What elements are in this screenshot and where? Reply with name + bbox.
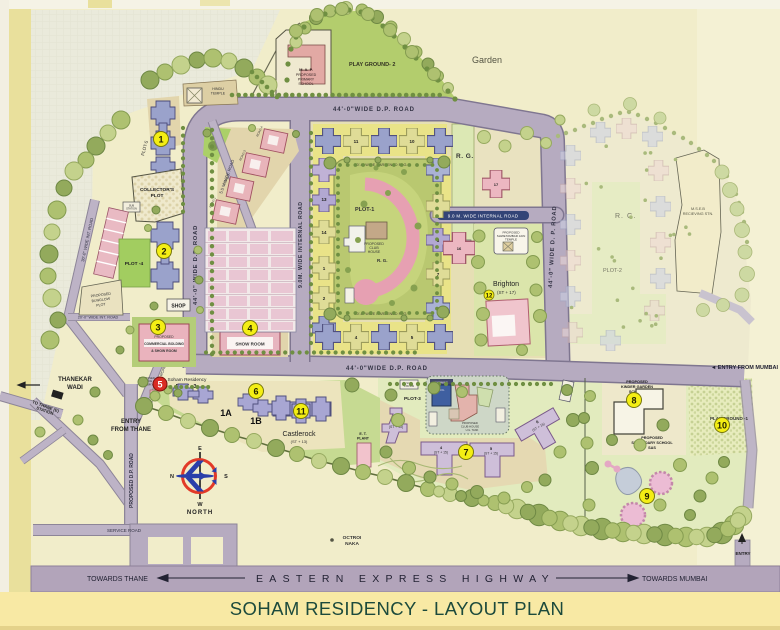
svg-text:U.G. TANK: U.G. TANK	[466, 428, 479, 432]
svg-text:17: 17	[494, 182, 499, 187]
svg-text:S: S	[224, 474, 228, 480]
svg-text:16: 16	[457, 246, 462, 251]
svg-text:44'-0" WIDE D.P. ROAD: 44'-0" WIDE D.P. ROAD	[193, 225, 199, 305]
svg-text:STATION: STATION	[126, 207, 137, 211]
svg-text:Brighton: Brighton	[493, 281, 519, 288]
svg-text:Garden: Garden	[472, 55, 502, 65]
svg-text:14: 14	[321, 230, 327, 235]
svg-text:SERVICE ROAD: SERVICE ROAD	[107, 528, 142, 533]
svg-text:COMMERCIAL BOLDING: COMMERCIAL BOLDING	[144, 342, 184, 346]
svg-text:20'-0" WIDE INT. ROAD: 20'-0" WIDE INT. ROAD	[78, 316, 119, 320]
svg-text:3: 3	[155, 323, 160, 333]
svg-text:PROPOSED: PROPOSED	[154, 335, 174, 339]
svg-text:SHOP: SHOP	[171, 304, 186, 310]
svg-text:WADI: WADI	[67, 385, 83, 391]
svg-text:9.0M. WIDE INTERNAL ROAD: 9.0M. WIDE INTERNAL ROAD	[298, 201, 304, 288]
svg-text:1A: 1A	[220, 408, 232, 418]
svg-text:COLLECTOR'S: COLLECTOR'S	[140, 187, 175, 193]
svg-text:PROPOSED: PROPOSED	[296, 73, 317, 77]
svg-text:11: 11	[354, 139, 359, 144]
svg-text:TOWARDS MUMBAI: TOWARDS MUMBAI	[642, 576, 707, 583]
svg-text:OCTROI: OCTROI	[343, 535, 362, 541]
svg-text:1B: 1B	[250, 416, 262, 426]
svg-text:6: 6	[253, 387, 258, 397]
svg-text:(ST + 13): (ST + 13)	[291, 439, 308, 444]
svg-text:E. T.: E. T.	[359, 432, 366, 436]
svg-text:(ST + 15): (ST + 15)	[484, 452, 498, 456]
svg-text:PLOT-2: PLOT-2	[603, 268, 622, 274]
svg-text:10: 10	[717, 421, 727, 431]
svg-text:M.S.E.B: M.S.E.B	[691, 207, 705, 211]
svg-text:CLUB HOUSE: CLUB HOUSE	[461, 424, 479, 428]
svg-text:PLOT -4: PLOT -4	[125, 261, 144, 267]
svg-text:PROPOSED: PROPOSED	[641, 436, 663, 440]
svg-text:E: E	[198, 446, 202, 452]
svg-text:SHOW ROOM: SHOW ROOM	[235, 342, 264, 347]
svg-text:PLOT-1: PLOT-1	[355, 207, 374, 213]
svg-text:11: 11	[296, 407, 306, 417]
svg-text:PLOT: PLOT	[151, 193, 164, 199]
svg-text:TOWARDS THANE: TOWARDS THANE	[87, 576, 148, 583]
svg-text:R. G.: R. G.	[456, 153, 474, 160]
svg-text:M. A. P.: M. A. P.	[299, 67, 313, 72]
svg-text:N: N	[170, 474, 174, 480]
svg-text:SCHOOL: SCHOOL	[298, 82, 313, 86]
svg-text:PLAY GROUND- 2: PLAY GROUND- 2	[349, 62, 395, 68]
svg-text:RECIEVING STN.: RECIEVING STN.	[683, 212, 714, 216]
svg-text:HINDU: HINDU	[212, 87, 224, 91]
svg-text:R. G.: R. G.	[615, 213, 636, 220]
svg-text:44'-0"WIDE D.P. ROAD: 44'-0"WIDE D.P. ROAD	[333, 107, 415, 113]
svg-text:◄ ENTRY FROM MUMBAI: ◄ ENTRY FROM MUMBAI	[711, 365, 779, 371]
svg-text:Soham Residency: Soham Residency	[168, 377, 208, 383]
svg-text:9.0 M. WIDE INTERNAL ROAD: 9.0 M. WIDE INTERNAL ROAD	[448, 214, 519, 219]
svg-text:NAKA: NAKA	[345, 541, 359, 547]
svg-text:44'-0"WIDE D.P. ROAD: 44'-0"WIDE D.P. ROAD	[346, 366, 428, 372]
svg-text:2: 2	[161, 247, 166, 257]
svg-text:10: 10	[409, 139, 415, 144]
svg-text:Castlerock: Castlerock	[282, 431, 316, 438]
svg-text:4: 4	[247, 324, 252, 334]
svg-text:13: 13	[321, 197, 327, 202]
svg-text:& SHOW ROOM: & SHOW ROOM	[151, 349, 177, 353]
svg-text:PLOT-3: PLOT-3	[404, 396, 421, 402]
svg-text:PLANT: PLANT	[357, 437, 370, 441]
svg-text:FROM THANE: FROM THANE	[111, 427, 151, 433]
svg-text:(ST + 17): (ST + 17)	[497, 290, 516, 295]
svg-text:5: 5	[157, 380, 162, 390]
svg-text:7: 7	[463, 448, 468, 458]
svg-text:12: 12	[486, 294, 493, 300]
svg-text:TEMPLE: TEMPLE	[505, 238, 517, 242]
svg-text:TEMPLE: TEMPLE	[211, 92, 226, 96]
svg-text:R. G.: R. G.	[377, 258, 388, 263]
svg-text:9: 9	[644, 492, 649, 502]
svg-text:(ST + 15): (ST + 15)	[434, 451, 448, 455]
svg-text:ENTRY: ENTRY	[121, 419, 141, 425]
svg-text:THANEKAR: THANEKAR	[58, 377, 92, 383]
svg-text:HOUSE: HOUSE	[368, 250, 381, 254]
svg-text:1: 1	[158, 135, 163, 145]
svg-text:SAS: SAS	[648, 446, 656, 450]
svg-text:PROPOSED: PROPOSED	[626, 380, 648, 384]
svg-text:SOHAM RESIDENCY - LAYOUT PLAN: SOHAM RESIDENCY - LAYOUT PLAN	[230, 598, 564, 619]
svg-text:ENTRY: ENTRY	[735, 551, 750, 556]
svg-text:NORTH: NORTH	[187, 510, 213, 516]
svg-text:PRIMARY: PRIMARY	[298, 78, 315, 82]
svg-text:PROPOSED D.P. ROAD: PROPOSED D.P. ROAD	[129, 453, 135, 508]
svg-text:EASTERN EXPRESS HIGHWAY: EASTERN EXPRESS HIGHWAY	[256, 573, 555, 585]
svg-text:8: 8	[631, 396, 636, 406]
svg-text:W: W	[197, 502, 203, 508]
